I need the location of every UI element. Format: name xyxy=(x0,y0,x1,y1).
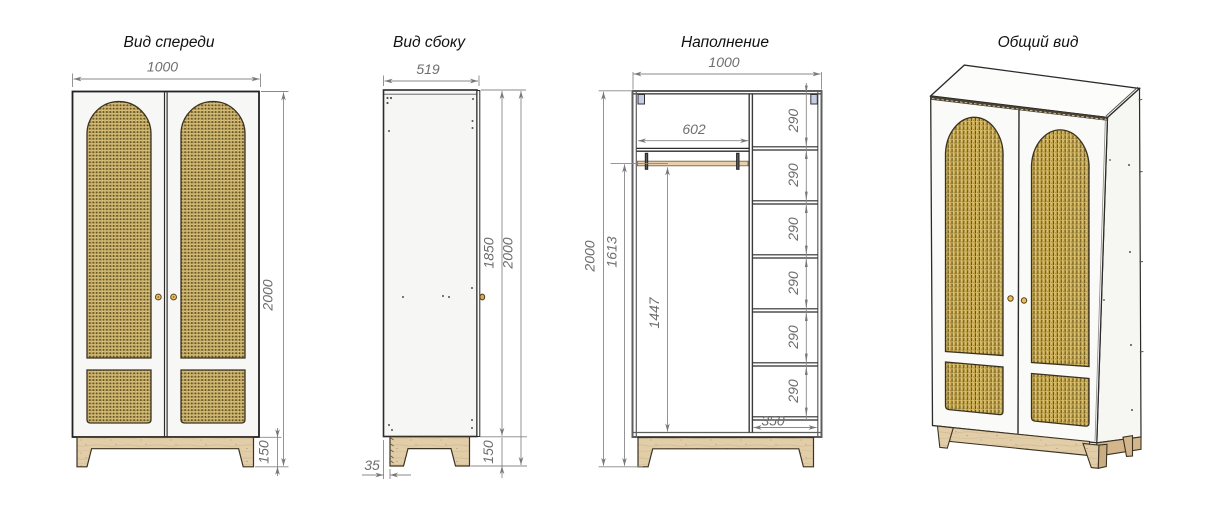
svg-text:602: 602 xyxy=(682,121,706,137)
svg-text:290: 290 xyxy=(785,109,801,134)
svg-text:2000: 2000 xyxy=(582,240,598,272)
svg-text:350: 350 xyxy=(761,413,785,429)
svg-text:Наполнение: Наполнение xyxy=(681,34,769,51)
svg-text:290: 290 xyxy=(785,217,801,242)
svg-text:150: 150 xyxy=(480,440,496,464)
svg-text:290: 290 xyxy=(785,325,801,350)
svg-text:2000: 2000 xyxy=(260,279,276,311)
svg-text:35: 35 xyxy=(364,457,380,473)
svg-text:2000: 2000 xyxy=(500,237,516,269)
svg-text:1000: 1000 xyxy=(708,54,739,70)
svg-text:1850: 1850 xyxy=(481,237,497,268)
svg-text:290: 290 xyxy=(785,379,801,404)
svg-text:Общий вид: Общий вид xyxy=(998,34,1079,51)
svg-text:Вид спереди: Вид спереди xyxy=(124,34,215,51)
svg-text:1000: 1000 xyxy=(147,59,178,75)
svg-text:519: 519 xyxy=(416,61,440,77)
svg-text:1447: 1447 xyxy=(646,296,662,328)
svg-text:150: 150 xyxy=(256,440,272,464)
svg-text:1613: 1613 xyxy=(604,236,620,267)
svg-text:290: 290 xyxy=(785,271,801,296)
svg-text:Вид сбоку: Вид сбоку xyxy=(393,34,466,51)
svg-text:290: 290 xyxy=(785,163,801,188)
